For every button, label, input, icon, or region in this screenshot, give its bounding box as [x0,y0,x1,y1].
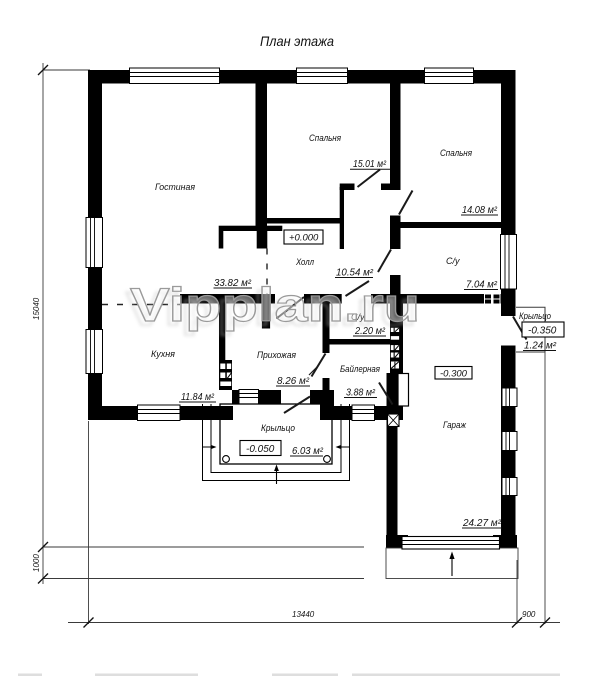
svg-text:План этажа: План этажа [260,33,334,49]
svg-text:-0.350: -0.350 [528,326,557,337]
svg-text:-0.050: -0.050 [246,444,275,455]
svg-text:Спальня: Спальня [440,148,472,158]
svg-text:Гостиная: Гостиная [155,182,195,192]
svg-text:С/у: С/у [446,256,460,266]
svg-text:Спальня: Спальня [309,133,341,143]
svg-text:6.03 м²: 6.03 м² [292,446,324,457]
svg-text:3.88 м²: 3.88 м² [346,388,376,399]
svg-text:24.27 м²: 24.27 м² [462,518,502,529]
svg-text:11.84 м²: 11.84 м² [181,392,215,403]
svg-text:Холл: Холл [295,257,314,267]
svg-text:900: 900 [522,610,536,619]
svg-text:15040: 15040 [32,297,41,320]
svg-text:Гараж: Гараж [443,420,467,430]
svg-text:8.26 м²: 8.26 м² [277,376,310,387]
svg-text:Vipplan.ru: Vipplan.ru [130,278,420,331]
svg-text:+0.000: +0.000 [289,233,319,244]
svg-text:10.54 м²: 10.54 м² [336,268,374,279]
svg-text:Прихожая: Прихожая [257,350,296,360]
svg-text:Кухня: Кухня [151,349,175,359]
svg-text:14.08 м²: 14.08 м² [462,205,498,216]
svg-text:1000: 1000 [32,554,41,572]
svg-text:Байлерная: Байлерная [340,364,380,374]
svg-text:Крыльцо: Крыльцо [261,423,295,434]
svg-text:Крыльцо: Крыльцо [519,311,551,322]
svg-text:13440: 13440 [292,610,315,619]
svg-text:7.04 м²: 7.04 м² [466,280,498,291]
svg-text:-0.300: -0.300 [440,369,468,380]
svg-text:15.01 м²: 15.01 м² [353,159,387,170]
svg-text:1.24 м²: 1.24 м² [524,341,557,352]
